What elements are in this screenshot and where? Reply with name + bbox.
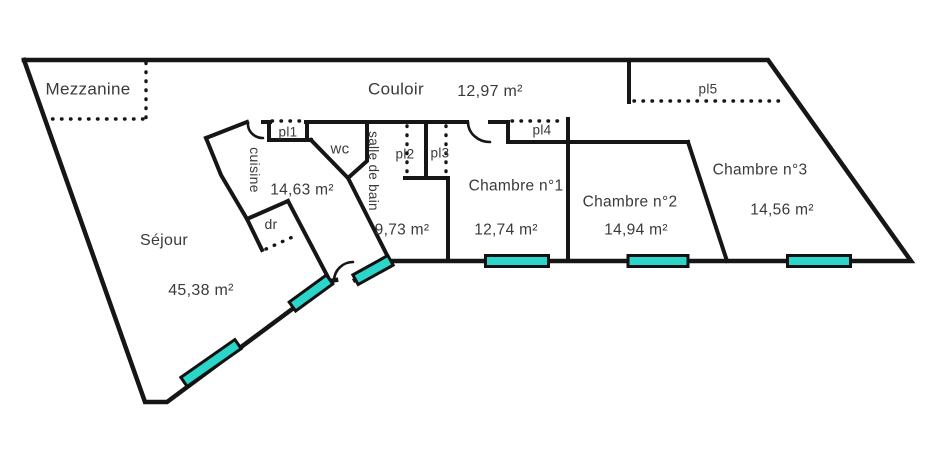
label-pl4-name: pl4 bbox=[533, 123, 552, 137]
floor-plan: MezzanineCouloir12,97 m²pl1pl2pl3pl4pl5c… bbox=[0, 0, 930, 463]
cuisine-left-wall bbox=[206, 138, 247, 219]
cuisine-door-arc bbox=[248, 123, 263, 138]
label-chambre3-area: 14,56 m² bbox=[750, 202, 814, 218]
pl2-pl3-walls bbox=[405, 122, 448, 261]
window-chambre-2 bbox=[628, 256, 688, 267]
label-chambre1-name: Chambre n°1 bbox=[469, 178, 564, 194]
window-chambre-3 bbox=[788, 256, 851, 267]
walls bbox=[24, 60, 911, 402]
corridor-wall bbox=[206, 122, 508, 138]
chambre1-door-arc bbox=[468, 122, 490, 142]
window-sejour-lower bbox=[181, 340, 241, 387]
label-couloir-area: 12,97 m² bbox=[457, 84, 523, 100]
dressing-dotted-front bbox=[266, 235, 297, 249]
label-sdb-name: salle de bain bbox=[366, 131, 380, 211]
label-chambre1-area: 12,74 m² bbox=[474, 222, 538, 238]
label-cuisine-area: 14,63 m² bbox=[270, 182, 334, 198]
label-sejour-name: Séjour bbox=[140, 233, 188, 249]
label-pl2-name: pl2 bbox=[396, 147, 415, 161]
window-entry bbox=[353, 255, 393, 284]
label-dr-name: dr bbox=[264, 217, 277, 231]
label-chambre2-name: Chambre n°2 bbox=[583, 194, 678, 210]
label-pl5-name: pl5 bbox=[699, 82, 718, 96]
label-sdb-area: 9,73 m² bbox=[375, 222, 430, 238]
label-cuisine-name: cuisine bbox=[248, 147, 262, 193]
label-chambre2-area: 14,94 m² bbox=[604, 222, 668, 238]
label-sejour-area: 45,38 m² bbox=[168, 283, 234, 299]
outer-wall-left-bottom bbox=[24, 60, 336, 402]
chambre2-chambre3-wall bbox=[688, 142, 727, 261]
label-pl3-name: pl3 bbox=[431, 146, 450, 160]
windows bbox=[181, 255, 851, 386]
wc-walls bbox=[348, 122, 367, 178]
label-pl1-name: pl1 bbox=[279, 125, 298, 139]
label-mezzanine-name: Mezzanine bbox=[46, 81, 131, 98]
label-wc-name: wc bbox=[331, 142, 350, 157]
window-sejour-upper bbox=[289, 275, 333, 311]
label-couloir-name: Couloir bbox=[368, 81, 424, 98]
entry-left-wall bbox=[288, 201, 330, 281]
label-chambre3-name: Chambre n°3 bbox=[713, 162, 808, 178]
window-chambre-1 bbox=[486, 256, 549, 267]
